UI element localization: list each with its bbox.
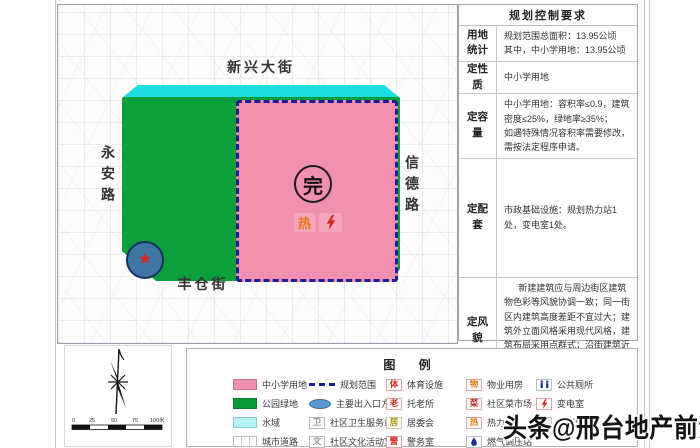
school-land-swatch — [233, 379, 257, 390]
city-road-swatch — [233, 436, 257, 447]
toilet-icon — [536, 379, 552, 391]
row-content: 规划范围总面积：13.95公顷 其中，中小学用地：13.95公顷 — [504, 29, 626, 58]
lightning-icon — [325, 215, 337, 230]
table-row-nature: 定性质 中小学用地 — [459, 62, 637, 95]
compass-scale-panel: 0 25 50 75 100米 — [64, 345, 172, 447]
row-content: 市政基础设施：规划热力站1处，变电室1处。 — [504, 203, 630, 232]
market-icon: 菜 — [466, 398, 482, 410]
sheet-right-border-inner — [649, 0, 650, 448]
water-strip — [122, 85, 400, 97]
legend-label: 水域 — [262, 416, 280, 429]
street-label-right: 信德路 — [402, 155, 422, 218]
scale-tick-2: 50 — [111, 418, 117, 424]
legend-label: 规划范围 — [340, 378, 376, 391]
row-label: 定配套 — [459, 159, 497, 277]
scale-tick-1: 25 — [89, 418, 95, 424]
park-green-swatch — [233, 398, 257, 409]
health-station-icon: 卫 — [309, 417, 325, 429]
legend-label: 城市道路 — [262, 435, 298, 448]
legend-label: 体育设施 — [407, 378, 443, 391]
legend-item-culture-room: 文 社区文化活动室 — [309, 435, 393, 448]
legend-label: 中小学用地 — [262, 378, 307, 391]
scale-tick-4: 100米 — [150, 416, 165, 424]
table-title: 规划控制要求 — [459, 5, 637, 26]
table-row-land-statistics: 用地统计 规划范围总面积：13.95公顷 其中，中小学用地：13.95公顷 — [459, 26, 637, 62]
legend-item-school-land: 中小学用地 — [233, 378, 307, 391]
row-content: 中小学用地 — [504, 70, 549, 84]
scale-tick-3: 75 — [132, 418, 138, 424]
legend-item-park-green: 公园绿地 — [233, 397, 298, 410]
street-label-top: 新兴大街 — [201, 57, 321, 77]
substation-marker — [319, 213, 342, 232]
legend-item-committee: 居 居委会 — [386, 416, 434, 429]
row-label: 定容量 — [459, 94, 497, 158]
scale-bar: 0 25 50 75 100米 — [70, 416, 166, 436]
seal-mark: 完 — [294, 165, 332, 203]
row-label: 定性质 — [459, 62, 497, 94]
sheet-left-border — [55, 0, 56, 448]
legend-label: 居委会 — [407, 416, 434, 429]
planning-sheet: { "map": { "street_top": "新兴大街", "street… — [0, 0, 700, 448]
street-label-bottom: 丰仓街 — [158, 274, 248, 294]
entrance-star-icon: ★ — [138, 252, 152, 268]
legend-label: 警务室 — [407, 435, 434, 448]
legend-item-public-toilet: 公共厕所 — [536, 378, 593, 391]
north-arrow-icon — [88, 346, 148, 416]
legend-label: 社区卫生服务站 — [330, 416, 393, 429]
heat-station-icon: 热 — [466, 417, 482, 429]
plan-boundary-icon — [309, 383, 335, 386]
planning-control-table: 规划控制要求 用地统计 规划范围总面积：13.95公顷 其中，中小学用地：13.… — [458, 4, 638, 341]
legend-item-health-station: 卫 社区卫生服务站 — [309, 416, 393, 429]
scale-tick-0: 0 — [72, 418, 75, 424]
heat-station-marker: 热 — [294, 213, 315, 232]
committee-icon: 居 — [386, 417, 402, 429]
legend-item-elderly-care: 老 托老所 — [386, 397, 434, 410]
legend-item-property-room: 物 物业用房 — [466, 378, 523, 391]
legend-title: 图 例 — [187, 356, 637, 373]
row-content: 中小学用地：容积率≤0.9，建筑密度≤25%，绿地率≥35%； 如遇特殊情况容积… — [504, 97, 630, 155]
legend-label: 公园绿地 — [262, 397, 298, 410]
seal-glyph: 完 — [303, 170, 323, 199]
sheet-right-border-outer — [644, 0, 645, 448]
legend-label: 物业用房 — [487, 378, 523, 391]
legend-label: 社区文化活动室 — [330, 435, 393, 448]
table-row-capacity: 定容量 中小学用地：容积率≤0.9，建筑密度≤25%，绿地率≥35%； 如遇特殊… — [459, 94, 637, 159]
legend-label: 公共厕所 — [557, 378, 593, 391]
table-row-facilities: 定配套 市政基础设施：规划热力站1处，变电室1处。 — [459, 159, 637, 278]
elderly-care-icon: 老 — [386, 398, 402, 410]
legend-item-sports: 体 体育设施 — [386, 378, 443, 391]
gas-regulator-flame-icon — [466, 436, 482, 448]
property-room-icon: 物 — [466, 379, 482, 391]
legend-item-police-room: 警 警务室 — [386, 435, 434, 448]
sports-facility-icon: 体 — [386, 379, 402, 391]
watermark: 头条@邢台地产前沿 — [503, 407, 700, 445]
site-plan-map: 完 热 ★ 新兴大街 永安路 信德路 丰仓街 — [57, 4, 458, 344]
legend-item-water: 水域 — [233, 416, 280, 429]
legend-label: 托老所 — [407, 397, 434, 410]
heat-glyph: 热 — [298, 213, 311, 232]
legend-item-plan-boundary: 规划范围 — [309, 378, 376, 391]
legend-item-city-road: 城市道路 — [233, 435, 298, 448]
row-label: 用地统计 — [459, 26, 497, 61]
street-label-left: 永安路 — [98, 145, 118, 208]
water-swatch — [233, 417, 257, 428]
culture-room-icon: 文 — [309, 436, 325, 448]
entrance-arrow-icon — [309, 399, 331, 409]
police-room-icon: 警 — [386, 436, 402, 448]
